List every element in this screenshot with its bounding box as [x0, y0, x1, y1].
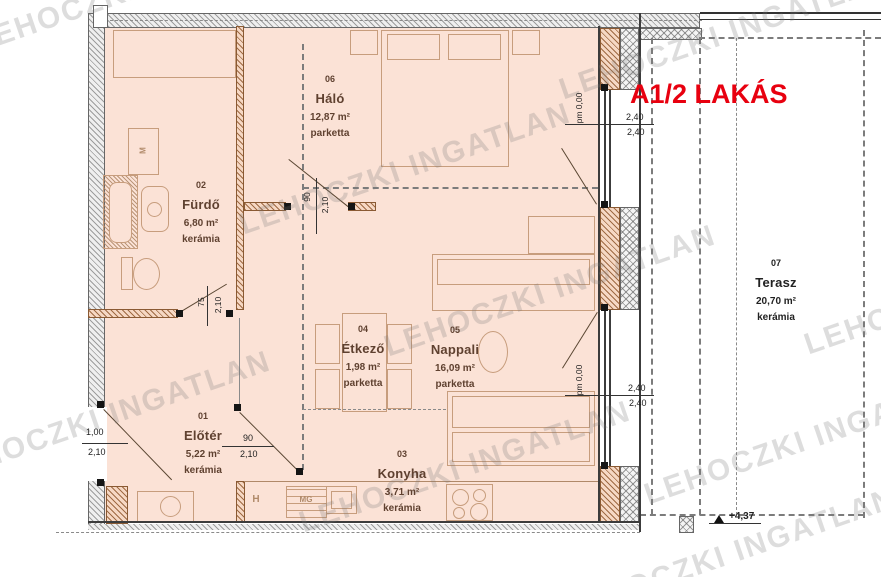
- opening-dim: 2,40: [627, 127, 645, 137]
- door-width: 90: [243, 433, 253, 443]
- level-underline: [709, 523, 761, 524]
- door-height: 2,10: [88, 447, 106, 457]
- room-area: 20,70 m²: [726, 296, 826, 307]
- door-width: 75: [196, 284, 206, 320]
- apartment-title: A1/2 LAKÁS: [630, 79, 788, 110]
- sofa-cushions: [437, 259, 590, 285]
- room-area: 5,22 m²: [153, 449, 253, 460]
- terrace-edge-dash: [863, 30, 865, 518]
- wall-right-inner-face: [598, 26, 600, 523]
- wall-top-axis-line: [90, 20, 702, 21]
- door-post: [348, 203, 355, 210]
- opening-dim: 2,40: [628, 383, 646, 393]
- room-floor: parketta: [280, 128, 380, 139]
- room-number: 07: [726, 258, 826, 268]
- room-name: Fürdő: [151, 197, 251, 212]
- kitchen-cabinet: [106, 486, 128, 524]
- door-post: [284, 203, 291, 210]
- room-label-konyha: 03 Konyha 3,71 m² kerámia: [352, 449, 452, 514]
- sink-basin: [160, 496, 181, 517]
- wall-right-block3: [600, 466, 620, 523]
- bathroom-counter: [113, 30, 236, 78]
- door-post: [601, 84, 608, 91]
- door-post: [176, 310, 183, 317]
- dimension-line: [82, 443, 128, 444]
- room-label-nappali: 05 Nappali 16,09 m² parketta: [405, 325, 505, 390]
- door-post: [296, 468, 303, 475]
- room-label-terasz: 07 Terasz 20,70 m² kerámia: [726, 258, 826, 323]
- entry-door-opening: [86, 407, 107, 481]
- wall-kitchen-stub: [236, 481, 245, 523]
- room-area: 16,09 m²: [405, 363, 505, 374]
- room-label-eloter: 01 Előtér 5,22 m² kerámia: [153, 411, 253, 476]
- kitchen-sink-inner: [331, 491, 352, 509]
- room-area: 3,71 m²: [352, 487, 452, 498]
- bedroom-living-division: [303, 187, 598, 189]
- wall-bottom-line: [88, 521, 640, 523]
- burner: [452, 489, 469, 506]
- wall-top-right-insulation: [640, 28, 702, 40]
- nightstand: [512, 30, 540, 55]
- wall-right-block2-insulation: [620, 207, 639, 310]
- room-name: Nappali: [405, 342, 505, 357]
- level-triangle-icon: [714, 515, 724, 523]
- door-post: [226, 310, 233, 317]
- dishwasher-label: MG: [291, 495, 321, 504]
- watermark: LEHOCZKI INGATLAN: [640, 367, 881, 513]
- room-number: 03: [352, 449, 452, 459]
- opening-dim: 2,40: [626, 112, 644, 122]
- door-post: [601, 462, 608, 469]
- sofa-cushions: [452, 396, 590, 428]
- toilet-tank: [121, 257, 133, 290]
- room-label-etkezo: 04 Étkező 1,98 m² parketta: [316, 324, 410, 389]
- room-number: 04: [316, 324, 410, 334]
- room-name: Terasz: [726, 275, 826, 290]
- terrace-door1-glazing: [604, 90, 606, 207]
- room-label-halo: 06 Háló 12,87 m² parketta: [280, 74, 380, 139]
- door-height: 2,10: [213, 283, 223, 327]
- room-name: Háló: [280, 91, 380, 106]
- room-label-furdo: 02 Fürdő 6,80 m² kerámia: [151, 180, 251, 245]
- wall-bottom-dash: [56, 532, 640, 533]
- bathtub-basin: [109, 182, 132, 243]
- wall-right-block3-insulation: [620, 466, 639, 523]
- door-post: [601, 201, 608, 208]
- room-floor: kerámia: [352, 503, 452, 514]
- level-mark: pm 0,00: [574, 85, 584, 131]
- door-width: 90: [302, 181, 312, 213]
- room-name: Konyha: [352, 466, 452, 481]
- door-post: [234, 404, 241, 411]
- room-number: 02: [151, 180, 251, 190]
- room-floor: kerámia: [726, 312, 826, 323]
- pillow: [387, 34, 440, 60]
- toilet-bowl: [133, 258, 160, 290]
- room-number: 05: [405, 325, 505, 335]
- room-area: 1,98 m²: [316, 362, 410, 373]
- room-name: Étkező: [316, 341, 410, 356]
- opening-dim: 2,40: [629, 398, 647, 408]
- pillow: [448, 34, 501, 60]
- terrace-door2-glazing: [609, 310, 611, 466]
- burner: [453, 507, 465, 519]
- terrace-door2-glazing: [604, 310, 606, 466]
- wall-bathroom-south: [88, 309, 178, 318]
- room-area: 12,87 m²: [280, 112, 380, 123]
- wall-right-block1: [600, 28, 620, 90]
- burner: [470, 503, 488, 521]
- wall-right-block2: [600, 207, 620, 310]
- door-height: 2,10: [240, 449, 258, 459]
- wall-bathroom-east: [236, 26, 244, 310]
- room-floor: kerámia: [153, 465, 253, 476]
- washer-label: M: [139, 126, 148, 176]
- wall-bottom-strip: [88, 524, 640, 530]
- door-post: [97, 479, 104, 486]
- terrace-column: [679, 516, 694, 533]
- dimension-line: [207, 286, 208, 326]
- room-number: 06: [280, 74, 380, 84]
- dimension-line: [316, 178, 317, 234]
- door-post: [97, 401, 104, 408]
- sofa-cushions: [452, 432, 590, 462]
- door-height: 2,10: [320, 183, 330, 227]
- room-floor: parketta: [405, 379, 505, 390]
- burner: [473, 489, 486, 502]
- wall-corner-detail: [93, 5, 108, 28]
- door-width: 1,00: [86, 427, 104, 437]
- terrace-railing: [700, 12, 881, 20]
- room-floor: parketta: [316, 378, 410, 389]
- fridge-label: H: [246, 494, 266, 505]
- hall-partition-line: [239, 318, 240, 406]
- terrace-level: +4,37: [729, 511, 754, 522]
- terrace-dash-top: [699, 37, 881, 39]
- room-number: 01: [153, 411, 253, 421]
- level-mark: pm 0,00: [574, 357, 584, 403]
- terrace-door1-glazing: [609, 90, 611, 207]
- room-name: Előtér: [153, 428, 253, 443]
- room-area: 6,80 m²: [151, 218, 251, 229]
- floor-plan: M H MG 06 Háló 12,87 m² parketta 02 Fürd…: [0, 0, 881, 577]
- door-post: [601, 304, 608, 311]
- room-floor: kerámia: [151, 234, 251, 245]
- tv-cabinet: [528, 216, 595, 254]
- nightstand: [350, 30, 378, 55]
